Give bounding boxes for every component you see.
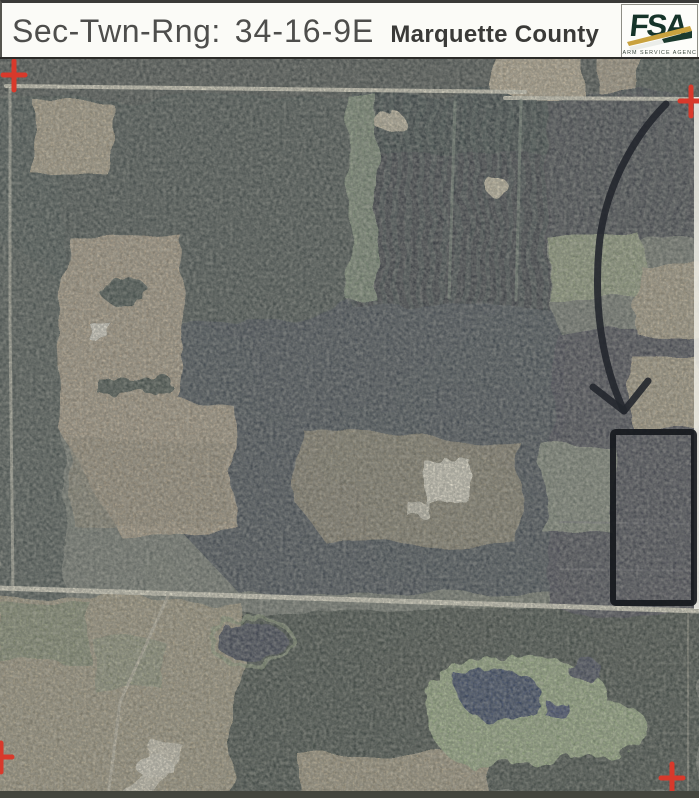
- fsa-map-page: Sec-Twn-Rng:34-16-9EMarquette County FSA…: [0, 0, 699, 800]
- aerial-photo: [0, 59, 699, 800]
- county-name: Marquette County: [390, 21, 599, 48]
- header-title: Sec-Twn-Rng:34-16-9EMarquette County: [12, 13, 599, 50]
- photo-bottom-edge: [0, 791, 699, 798]
- sec-twn-rng-value: 34-16-9E: [235, 13, 375, 49]
- fsa-logo-graphic: FSA FARM SERVICE AGENCY: [622, 5, 697, 57]
- fsa-logo: FSA FARM SERVICE AGENCY: [621, 4, 698, 58]
- grain-light: [0, 59, 699, 800]
- fsa-caption: FARM SERVICE AGENCY: [622, 50, 697, 56]
- header-bar: Sec-Twn-Rng:34-16-9EMarquette County FSA…: [0, 0, 699, 57]
- aerial-map: [0, 57, 699, 800]
- sec-twn-rng-label: Sec-Twn-Rng:: [12, 13, 221, 49]
